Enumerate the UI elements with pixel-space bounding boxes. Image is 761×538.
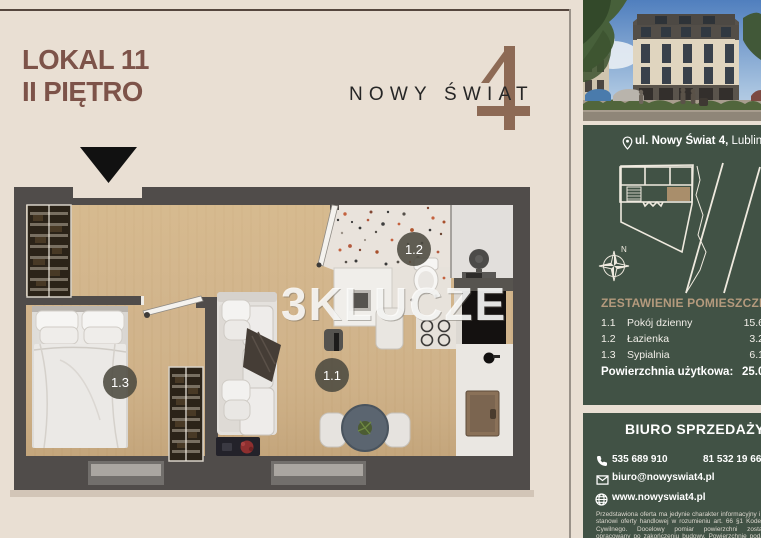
svg-text:N: N (621, 245, 627, 254)
svg-text:1.2: 1.2 (405, 242, 423, 257)
svg-text:3KLUCZE: 3KLUCZE (281, 278, 507, 330)
svg-text:1.1: 1.1 (323, 368, 341, 383)
svg-text:1.3: 1.3 (111, 375, 129, 390)
